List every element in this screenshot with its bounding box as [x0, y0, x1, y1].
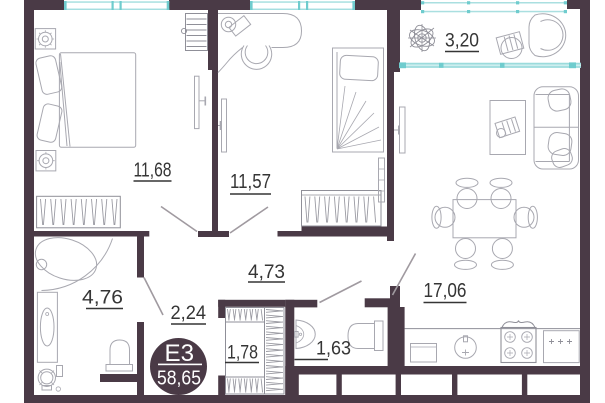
- svg-text:1,63: 1,63: [316, 338, 351, 360]
- svg-text:4,73: 4,73: [248, 261, 285, 283]
- svg-text:17,06: 17,06: [424, 279, 467, 302]
- svg-text:2,24: 2,24: [171, 302, 207, 324]
- svg-text:11,68: 11,68: [134, 159, 172, 182]
- svg-text:1,78: 1,78: [227, 342, 258, 364]
- svg-text:11,57: 11,57: [230, 170, 271, 193]
- svg-text:58,65: 58,65: [157, 367, 201, 390]
- svg-text:3,20: 3,20: [445, 30, 479, 52]
- svg-text:E3: E3: [165, 340, 195, 367]
- svg-text:4,76: 4,76: [82, 287, 123, 309]
